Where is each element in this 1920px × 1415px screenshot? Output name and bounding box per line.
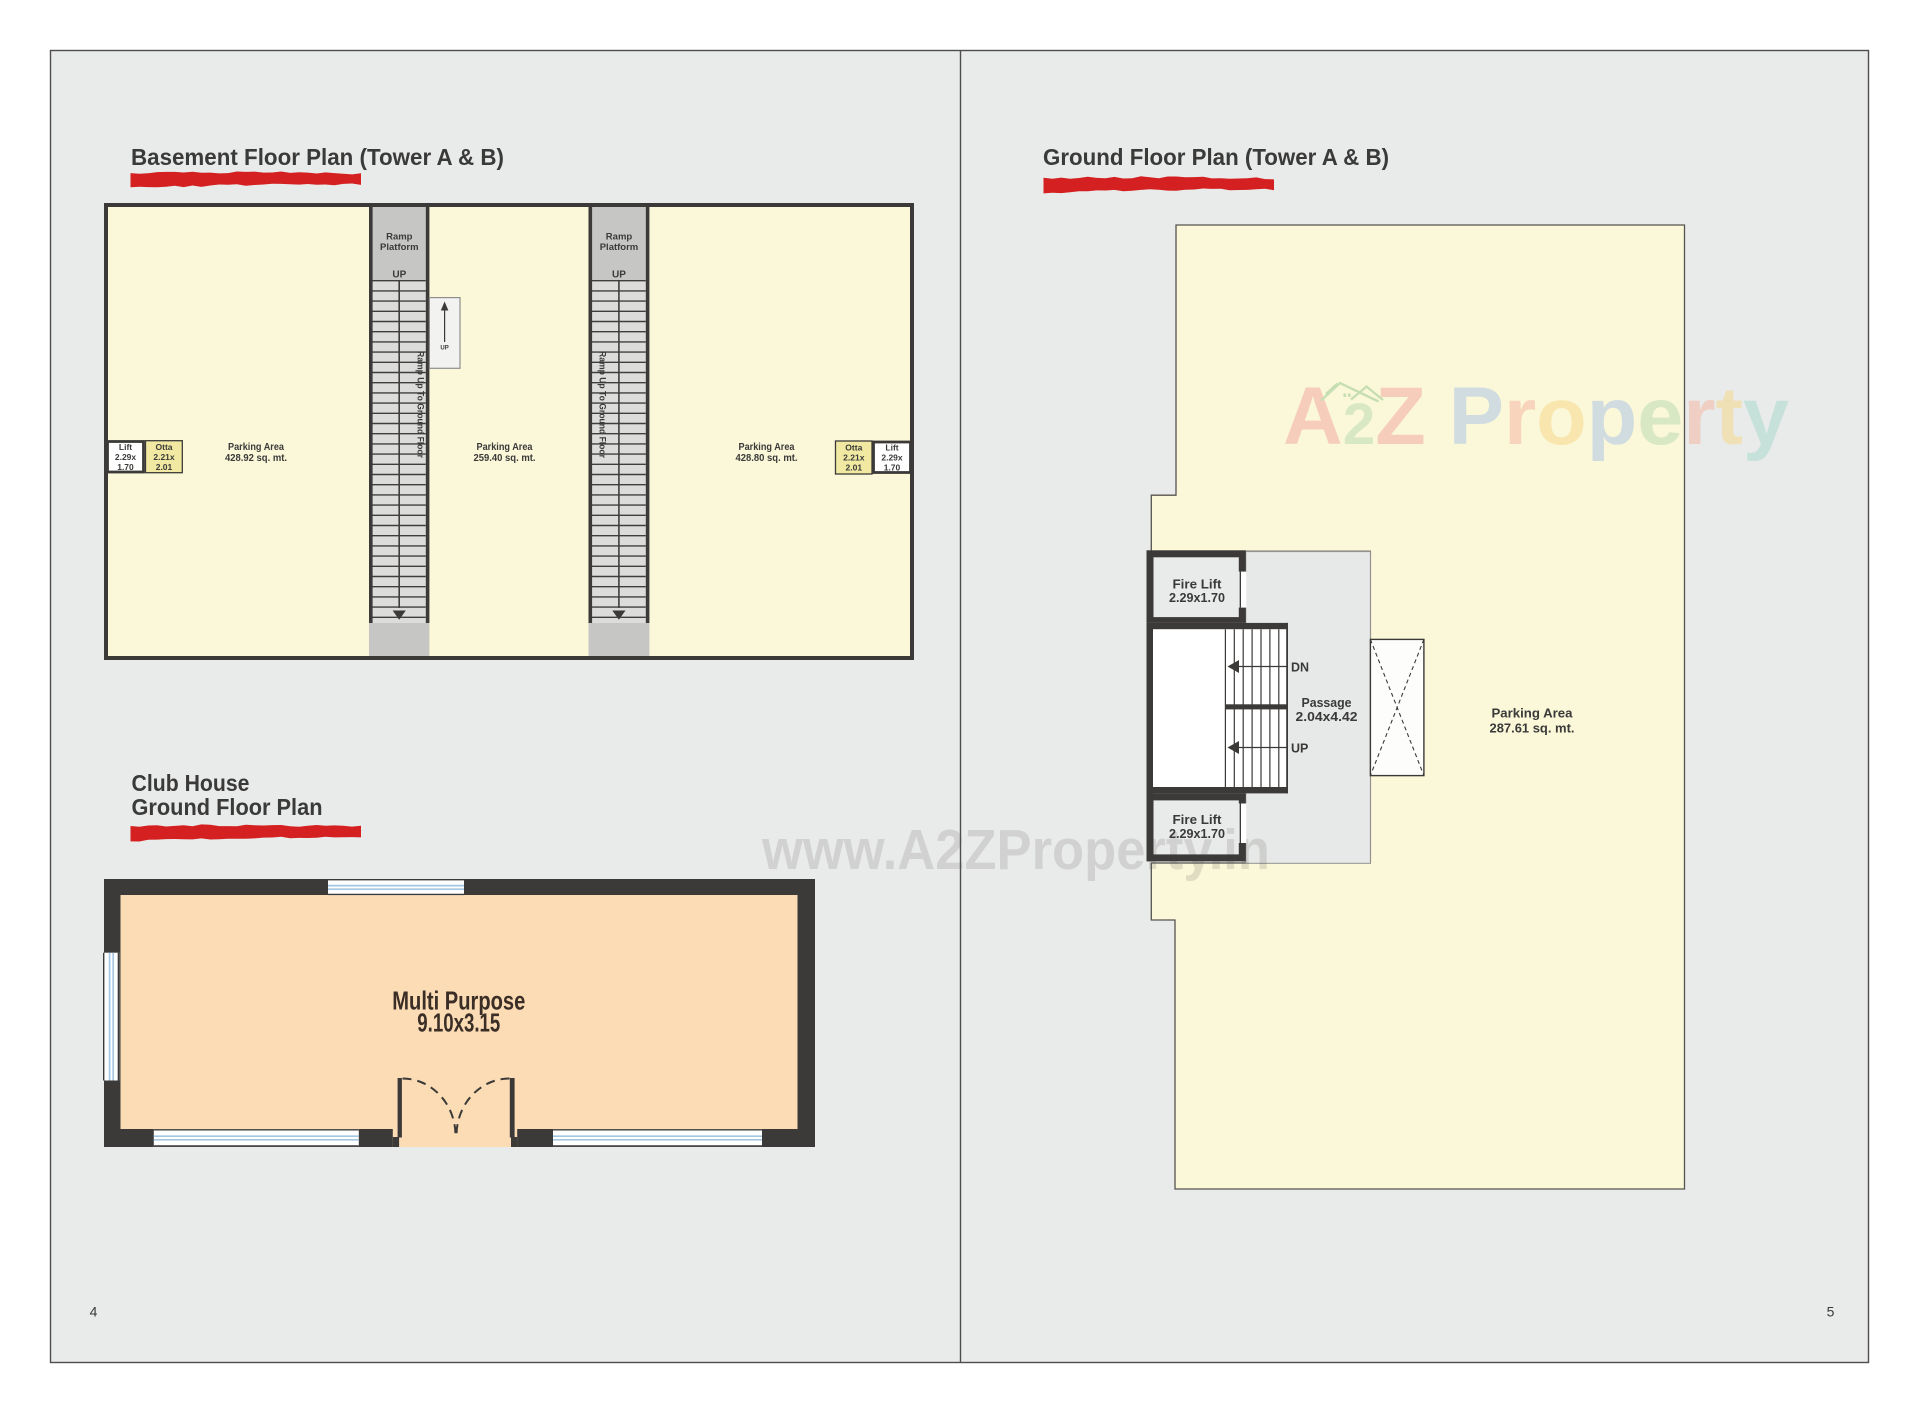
svg-text:Parking Area: Parking Area	[739, 442, 795, 453]
svg-text:9.10x3.15: 9.10x3.15	[417, 1008, 500, 1038]
svg-text:DN: DN	[1291, 661, 1309, 675]
svg-text:Ramp Up To Ground Floor: Ramp Up To Ground Floor	[415, 351, 426, 458]
svg-text:Club House: Club House	[132, 770, 250, 796]
svg-text:Lift: Lift	[119, 442, 132, 452]
svg-text:Ground Floor Plan: Ground Floor Plan	[132, 794, 323, 820]
svg-text:4: 4	[90, 1304, 98, 1320]
svg-text:287.61 sq. mt.: 287.61 sq. mt.	[1490, 721, 1575, 736]
svg-text:2.29x: 2.29x	[881, 453, 903, 463]
svg-text:5: 5	[1827, 1304, 1835, 1320]
svg-text:2.21x: 2.21x	[843, 453, 865, 463]
svg-text:Fire Lift: Fire Lift	[1173, 578, 1223, 592]
svg-text:Parking Area: Parking Area	[1492, 706, 1574, 721]
svg-text:Platform: Platform	[380, 242, 419, 253]
svg-text:1.70: 1.70	[117, 462, 134, 472]
svg-text:UP: UP	[612, 270, 626, 281]
svg-text:2.29x1.70: 2.29x1.70	[1169, 827, 1225, 841]
svg-text:Otta: Otta	[156, 442, 173, 452]
svg-text:2.21x: 2.21x	[153, 452, 175, 462]
svg-text:2.29x1.70: 2.29x1.70	[1169, 591, 1225, 605]
svg-text:2.01: 2.01	[156, 462, 173, 472]
svg-text:Fire Lift: Fire Lift	[1173, 813, 1223, 827]
svg-text:UP: UP	[440, 346, 448, 352]
svg-text:Parking Area: Parking Area	[228, 442, 284, 453]
svg-text:1.70: 1.70	[884, 463, 901, 473]
svg-text:Ramp: Ramp	[606, 232, 633, 243]
svg-text:UP: UP	[1291, 742, 1308, 756]
svg-text:Lift: Lift	[885, 443, 898, 453]
svg-text:2.01: 2.01	[846, 463, 863, 473]
svg-text:Parking Area: Parking Area	[477, 442, 533, 453]
svg-text:Passage: Passage	[1302, 696, 1352, 710]
svg-text:UP: UP	[392, 270, 406, 281]
svg-text:Basement Floor Plan (Tower A &: Basement Floor Plan (Tower A & B)	[131, 144, 504, 170]
svg-text:259.40 sq. mt.: 259.40 sq. mt.	[474, 453, 536, 464]
svg-text:Platform: Platform	[600, 242, 639, 253]
svg-text:Ramp: Ramp	[386, 232, 413, 243]
svg-text:Ramp Up To Ground Floor: Ramp Up To Ground Floor	[597, 351, 608, 458]
svg-text:2.29x: 2.29x	[115, 452, 137, 462]
svg-text:428.80 sq. mt.: 428.80 sq. mt.	[736, 453, 798, 464]
svg-text:Otta: Otta	[845, 443, 862, 453]
svg-text:2.04x4.42: 2.04x4.42	[1296, 710, 1358, 724]
svg-text:Ground Floor Plan (Tower A & B: Ground Floor Plan (Tower A & B)	[1043, 144, 1389, 170]
svg-text:428.92 sq. mt.: 428.92 sq. mt.	[225, 453, 287, 464]
